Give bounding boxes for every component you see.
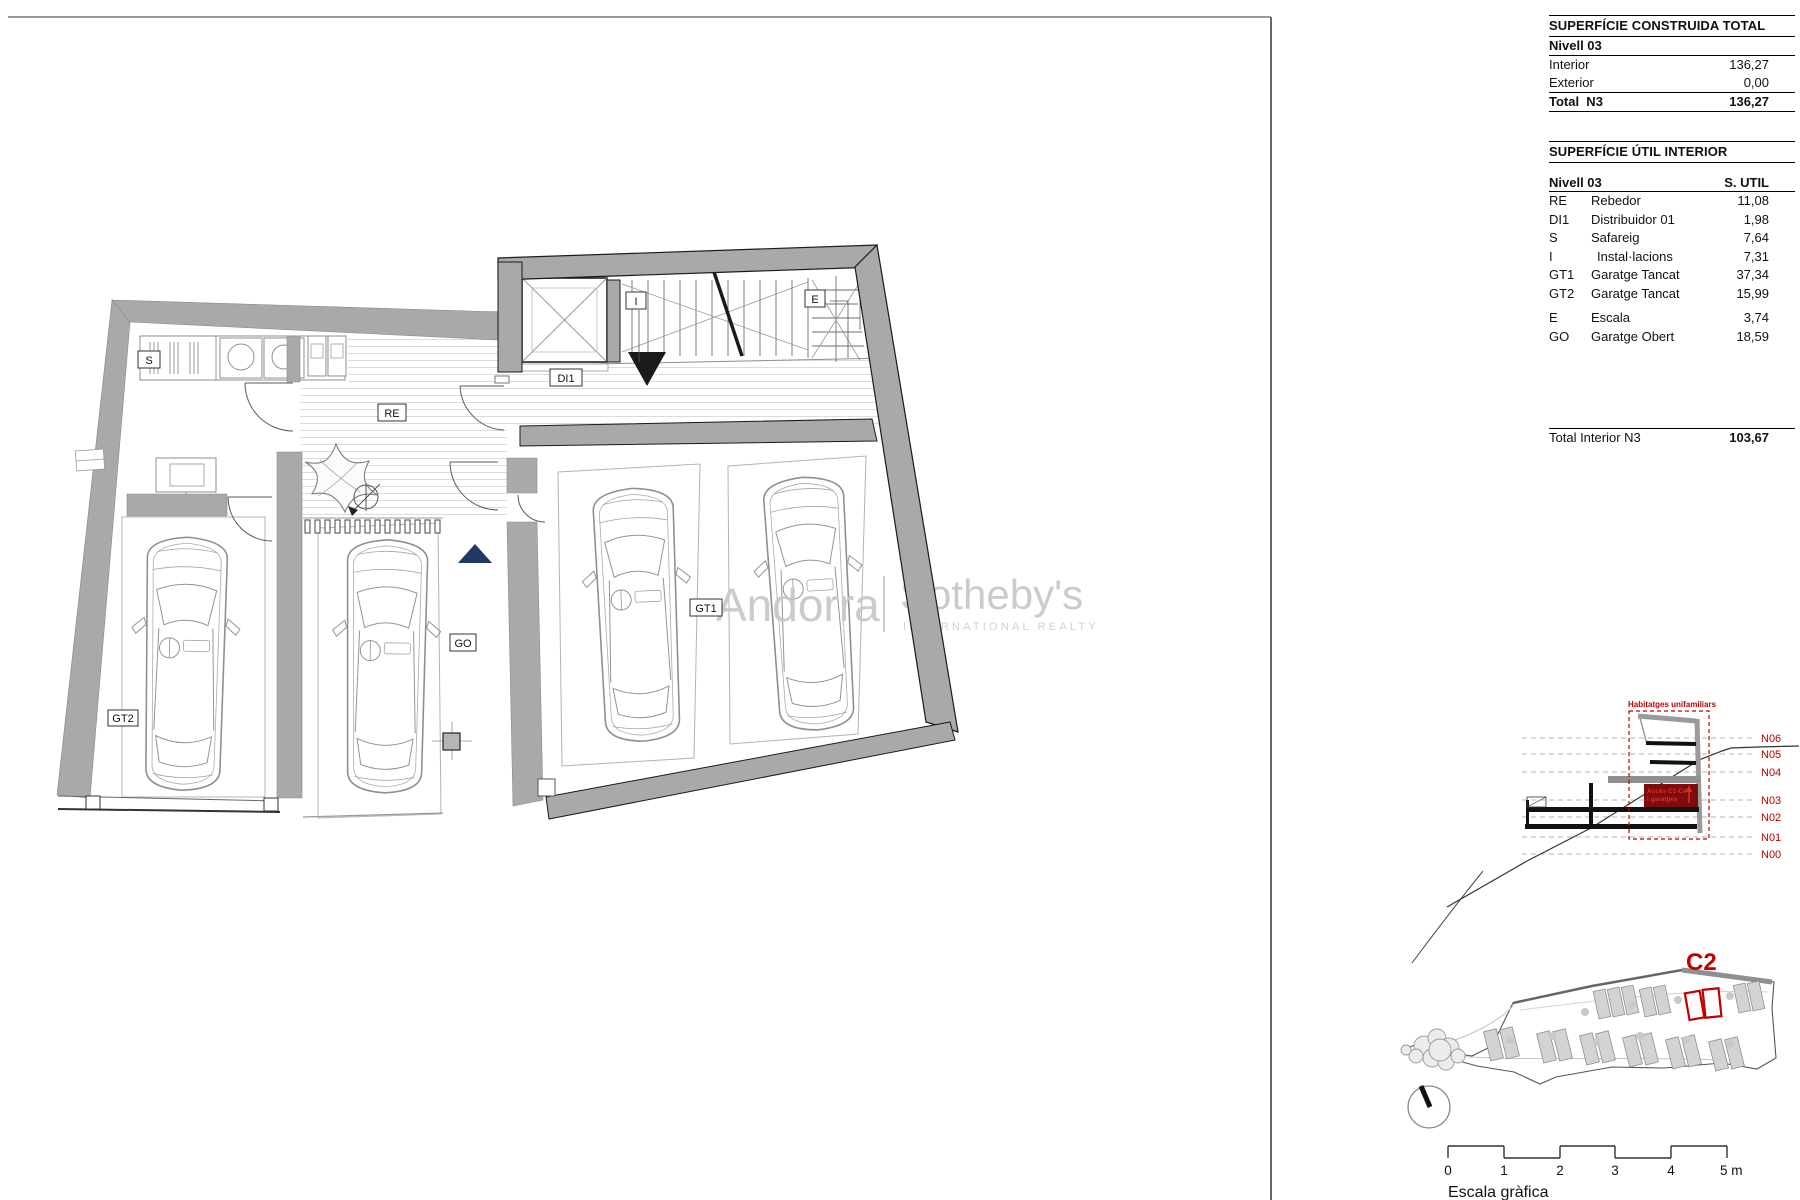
table-row: GT2Garatge Tancat15,99 [1549,285,1795,304]
washer-icon [156,458,216,492]
scale-tick: 0 [1444,1163,1452,1178]
door-arc-go-gt1 [518,495,545,522]
svg-text:GT1: GT1 [695,603,716,615]
wall-gt1-left-upper [507,458,537,493]
built-area-level: Nivell 03 [1549,37,1795,55]
svg-text:E: E [811,294,818,306]
car-gt1-left [578,486,697,743]
table-row: Exterior 0,00 [1549,74,1795,92]
usable-area-header: Nivell 03 S. UTIL [1549,174,1795,191]
section-diagram: N06 N05 N04 N03 N02 N01 N00 Accés [1412,700,1799,963]
wall-right [855,245,958,732]
table-row: IInstal·lacions7,31 [1549,248,1795,267]
wall-s-re [287,336,300,382]
svg-text:I: I [634,296,637,308]
usable-area-total-row: Total Interior N3 103,67 [1549,429,1795,448]
wall-gt2-go-divider [277,452,302,798]
post-icon [538,779,555,796]
section-building: Accés C1-C4 i garatges [1525,716,1700,833]
wall-gt1-left-lower [507,522,543,806]
table-row: GOGaratge Obert18,59 [1549,328,1795,347]
svg-text:GO: GO [454,638,472,650]
scale-tick: 5 m [1720,1163,1743,1178]
level-label: N05 [1761,749,1781,761]
built-area-table-title: SUPERFÍCIE CONSTRUIDA TOTAL [1549,16,1795,36]
scale-tick: 2 [1556,1163,1564,1178]
room-label-gt2: GT2 [108,710,138,726]
wall-shaft-left [498,262,522,372]
access-label-line1: Accés C1-C4 [1647,788,1687,795]
built-area-table: SUPERFÍCIE CONSTRUIDA TOTAL Nivell 03 In… [1549,15,1795,112]
floorplan-sheet: Andorra Sotheby's INTERNATIONAL REALTY [0,0,1800,1200]
room-label-s: S [138,351,160,368]
level-label: N06 [1761,733,1781,745]
built-area-total-row: Total N3 136,27 [1549,93,1795,111]
scale-tick: 3 [1611,1163,1619,1178]
level-label: N01 [1761,832,1781,844]
room-label-e: E [805,290,825,307]
post-icon [264,798,278,811]
scale-tick: 4 [1667,1163,1675,1178]
usable-area-table-title: SUPERFÍCIE ÚTIL INTERIOR [1549,142,1795,162]
car-gt2 [129,536,242,791]
level-labels: N06 N05 N04 N03 N02 N01 N00 [1761,733,1781,861]
room-label-di1: DI1 [550,369,582,386]
table-row: GT1Garatge Tancat37,34 [1549,266,1795,285]
wall-top-middle [498,245,877,280]
room-label-i: I [626,292,646,309]
level-label: N03 [1761,795,1781,807]
entry-arrow-icon [458,544,492,563]
room-label-go: GO [450,634,476,651]
room-label-re: RE [378,404,406,421]
drawing-canvas: Andorra Sotheby's INTERNATIONAL REALTY [0,0,1800,1200]
terrain-contour [1412,871,1483,963]
watermark-brand-left: Andorra [716,579,880,631]
post-icon [86,796,100,809]
table-row: Interior 136,27 [1549,56,1795,74]
site-buildings [1484,981,1765,1071]
scale-caption: Escala gràfica [1448,1184,1549,1200]
table-row: RERebedor11,08 [1549,192,1795,211]
wall-s-gt2 [127,494,227,516]
wall-shaft-right [607,280,620,362]
svg-text:DI1: DI1 [557,373,574,385]
usable-area-table: SUPERFÍCIE ÚTIL INTERIOR Nivell 03 S. UT… [1549,141,1795,448]
scale-bar: 0 1 2 3 4 5 m Escala gràfica [1444,1146,1742,1200]
scale-tick: 1 [1500,1163,1508,1178]
site-unit-label: C2 [1686,949,1717,976]
section-title: Habitatges unifamiliars [1628,700,1717,709]
room-label-gt1: GT1 [690,599,722,616]
car-go [330,539,442,793]
north-arrow-icon [1408,1086,1450,1128]
svg-text:S: S [145,355,152,367]
cars [129,474,872,794]
svg-text:RE: RE [384,408,399,420]
table-row: SSafareig7,64 [1549,229,1795,248]
table-row: DI1Distribuidor 011,98 [1549,211,1795,230]
wall-top-left [112,300,500,340]
wall-gt1-bottom [546,722,955,819]
svg-text:GT2: GT2 [112,713,133,725]
table-row: EEscala3,74 [1549,309,1795,328]
door-arc-s [245,383,293,431]
tree-icon [1401,1029,1465,1070]
site-plan: C2 [1401,949,1776,1084]
level-label: N04 [1761,767,1781,779]
pillar-icon [432,722,472,760]
level-label: N00 [1761,849,1781,861]
drain-grate-icon [305,520,440,533]
floor-plan: Andorra Sotheby's INTERNATIONAL REALTY [57,245,1099,819]
highlighted-unit [1685,988,1722,1020]
access-label-line2: i garatges [1647,796,1678,803]
installations-shaft [520,278,608,371]
level-label: N02 [1761,812,1781,824]
